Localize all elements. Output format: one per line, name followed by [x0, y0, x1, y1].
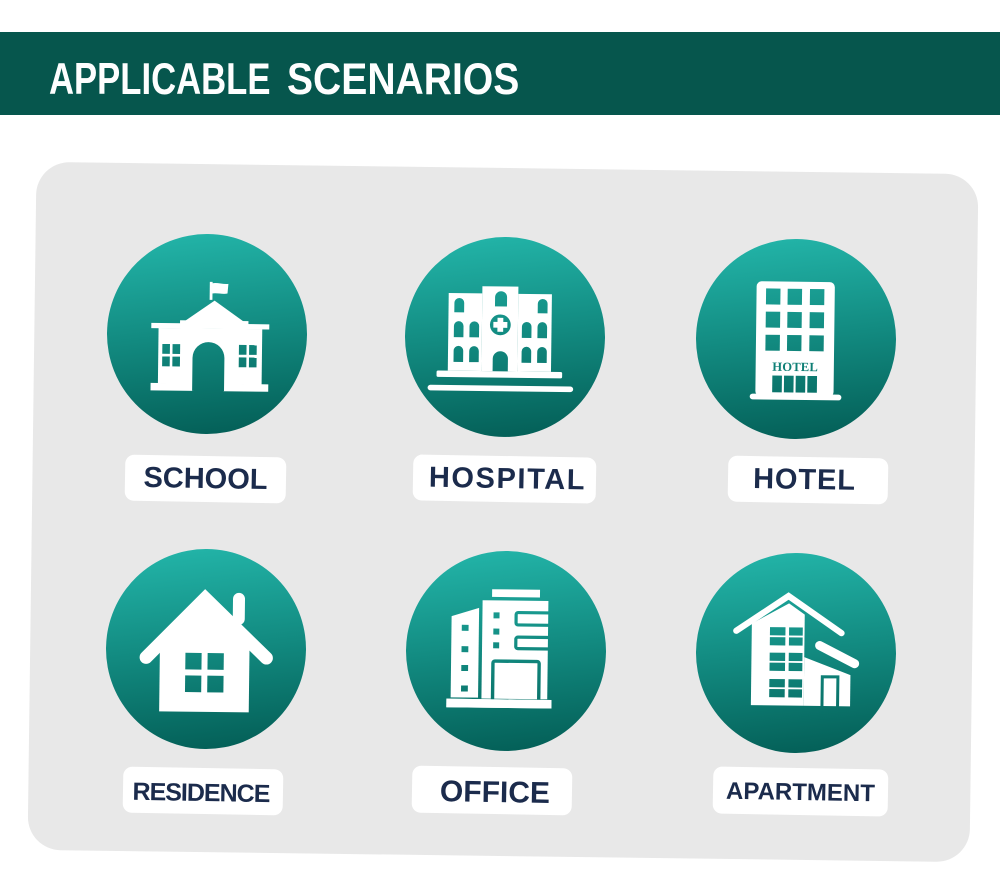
svg-text:HOTEL: HOTEL: [772, 359, 818, 374]
